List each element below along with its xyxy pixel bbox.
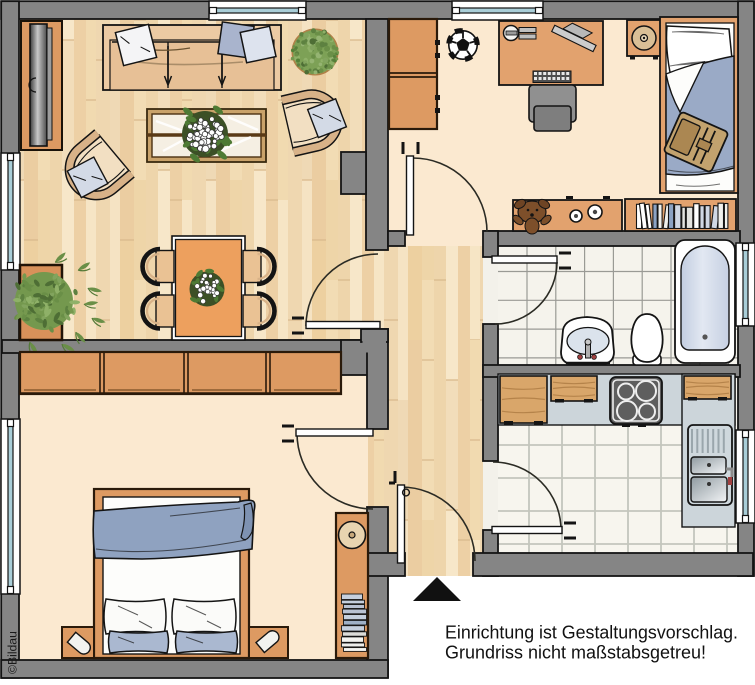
svg-text:Grundriss nicht maßstabsgetreu: Grundriss nicht maßstabsgetreu! <box>445 642 706 663</box>
svg-text:©Bildau: ©Bildau <box>6 631 20 674</box>
svg-text:Einrichtung ist Gestaltungsvor: Einrichtung ist Gestaltungsvorschlag. <box>445 622 738 643</box>
